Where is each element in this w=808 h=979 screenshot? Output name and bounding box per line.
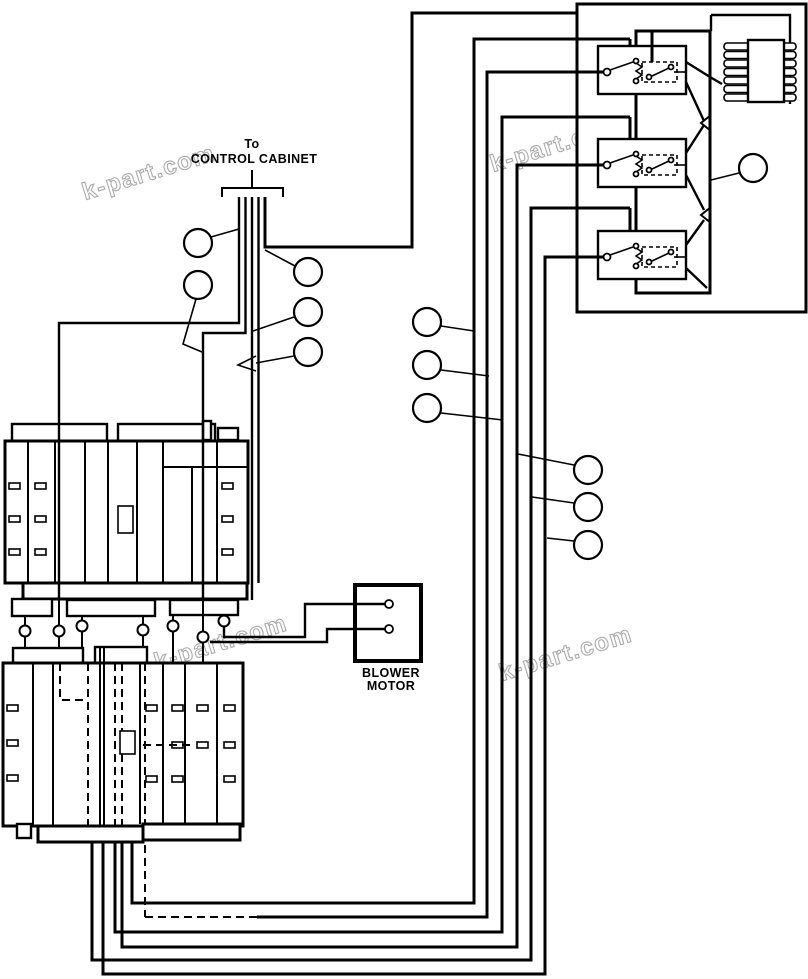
callout-balloon-6[interactable]: [413, 308, 441, 336]
leader-line: [441, 370, 489, 376]
callout-balloon-3[interactable]: [294, 258, 322, 286]
callout-balloon-4[interactable]: [294, 298, 322, 326]
callout-balloon-9[interactable]: [574, 456, 602, 484]
leader-line: [265, 250, 295, 266]
blower-motor-label-line1: BLOWER: [362, 666, 420, 680]
watermark-text: k-part.com: [79, 140, 219, 206]
leader-line: [238, 356, 294, 371]
heater-bank-upper: [5, 421, 248, 616]
wiring-diagram-canvas: k-part.com k-part.com k-part.com k-part.…: [0, 0, 808, 979]
relay-2: [598, 139, 686, 187]
leader-line: [532, 497, 574, 503]
leader-line: [211, 229, 239, 237]
callout-balloon-10[interactable]: [574, 493, 602, 521]
callout-balloon-1[interactable]: [184, 229, 212, 257]
callout-balloon-5[interactable]: [294, 338, 322, 366]
control-cabinet-label-line2: CONTROL CABINET: [191, 152, 318, 166]
callout-balloon-2[interactable]: [184, 271, 212, 299]
leader-line: [441, 413, 503, 420]
leader-line: [441, 326, 474, 331]
control-cabinet-label-line1: To: [244, 137, 259, 151]
relay-1: [598, 46, 686, 94]
callout-balloon-12[interactable]: [739, 154, 767, 182]
leader-line: [183, 299, 202, 352]
wiring-diagram: k-part.com k-part.com k-part.com k-part.…: [0, 0, 808, 979]
relay-3: [598, 231, 686, 279]
callout-balloon-7[interactable]: [413, 351, 441, 379]
leader-line: [547, 538, 574, 541]
callout-balloon-8[interactable]: [413, 394, 441, 422]
callout-balloon-11[interactable]: [574, 531, 602, 559]
blower-motor-label-line2: MOTOR: [367, 679, 415, 693]
